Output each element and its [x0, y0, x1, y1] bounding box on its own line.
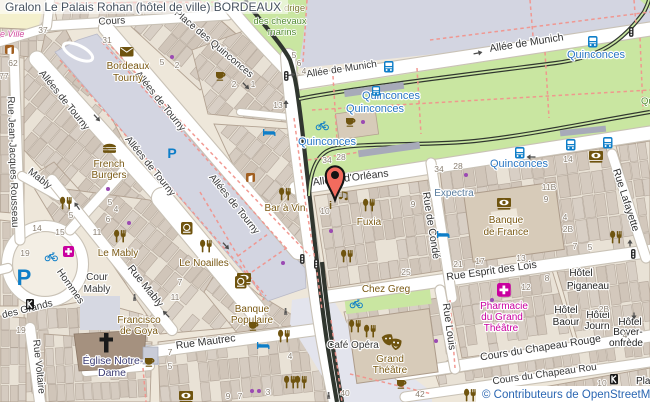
- svg-text:40: 40: [340, 388, 350, 398]
- svg-text:Chez Greg: Chez Greg: [362, 284, 410, 295]
- svg-text:des chevaux: des chevaux: [253, 16, 307, 27]
- svg-text:9: 9: [226, 391, 231, 401]
- svg-text:Banque: Banque: [489, 215, 524, 226]
- svg-text:French: French: [93, 159, 124, 170]
- svg-text:3: 3: [266, 387, 271, 397]
- svg-text:2: 2: [175, 60, 180, 70]
- svg-text:Mably: Mably: [84, 284, 111, 295]
- svg-text:Piganeau: Piganeau: [567, 281, 609, 292]
- svg-text:7: 7: [238, 391, 243, 401]
- svg-text:4: 4: [623, 330, 628, 340]
- svg-text:1: 1: [251, 79, 256, 89]
- svg-text:8: 8: [545, 273, 550, 283]
- svg-text:Quinconces: Quinconces: [490, 158, 549, 170]
- svg-text:14: 14: [563, 154, 573, 164]
- svg-text:2B: 2B: [563, 224, 574, 234]
- svg-text:Le Noailles: Le Noailles: [179, 258, 228, 269]
- svg-text:Pharmacie: Pharmacie: [480, 301, 528, 312]
- svg-text:Quinconces: Quinconces: [362, 90, 421, 102]
- svg-text:Quinconces: Quinconces: [567, 49, 626, 61]
- svg-text:Église Notre-: Église Notre-: [83, 354, 144, 367]
- svg-text:13: 13: [273, 100, 283, 110]
- svg-text:i: i: [329, 200, 332, 212]
- svg-text:9: 9: [411, 199, 416, 209]
- svg-text:Grand: Grand: [376, 354, 404, 365]
- svg-text:du Grand: du Grand: [481, 312, 523, 323]
- svg-text:marins: marins: [268, 27, 297, 38]
- svg-text:21: 21: [453, 259, 463, 269]
- svg-text:31: 31: [102, 35, 112, 45]
- svg-text:5: 5: [69, 210, 74, 220]
- svg-text:P: P: [167, 145, 176, 161]
- svg-text:34: 34: [322, 155, 332, 165]
- svg-text:28: 28: [453, 161, 463, 171]
- svg-text:7: 7: [573, 241, 578, 251]
- svg-text:e Ville: e Ville: [0, 29, 24, 39]
- svg-text:14: 14: [32, 223, 42, 233]
- svg-text:Bordeaux: Bordeaux: [107, 61, 150, 72]
- svg-text:5: 5: [108, 197, 113, 207]
- svg-text:Quinconces: Quinconces: [346, 103, 405, 115]
- svg-text:7: 7: [178, 277, 183, 287]
- svg-text:37: 37: [38, 25, 48, 35]
- svg-text:4: 4: [563, 212, 568, 222]
- svg-text:Fuxia: Fuxia: [357, 217, 382, 228]
- svg-text:Gralon Le Palais Rohan (hôtel: Gralon Le Palais Rohan (hôtel de ville) …: [5, 0, 281, 14]
- svg-text:28: 28: [336, 152, 346, 162]
- svg-text:34: 34: [434, 164, 444, 174]
- svg-text:Hôtel: Hôtel: [554, 305, 577, 316]
- svg-text:2: 2: [232, 79, 237, 89]
- svg-text:19: 19: [16, 325, 26, 335]
- svg-text:6: 6: [106, 214, 111, 224]
- svg-text:de France: de France: [483, 227, 528, 238]
- svg-text:Expectra: Expectra: [434, 188, 474, 199]
- svg-text:© Contributeurs de OpenStreetM: © Contributeurs de OpenStreetMap: [482, 389, 650, 401]
- svg-text:9: 9: [544, 194, 549, 204]
- svg-text:11: 11: [171, 292, 180, 302]
- svg-text:5: 5: [168, 361, 173, 371]
- svg-text:Bar à Vin: Bar à Vin: [265, 203, 306, 214]
- svg-text:4: 4: [288, 351, 293, 361]
- svg-text:Francisco: Francisco: [117, 315, 161, 326]
- svg-text:Tourny: Tourny: [113, 73, 143, 84]
- svg-text:Théâtre: Théâtre: [484, 323, 519, 334]
- svg-text:12: 12: [521, 282, 531, 292]
- svg-text:Baour: Baour: [553, 317, 580, 328]
- svg-text:de Goya: de Goya: [120, 326, 158, 337]
- svg-text:Café Opéra: Café Opéra: [327, 340, 379, 351]
- svg-text:2B: 2B: [599, 304, 610, 314]
- svg-text:Théâtre: Théâtre: [373, 365, 408, 376]
- svg-text:Quinconces: Quinconces: [298, 136, 357, 148]
- svg-text:Boyer-: Boyer-: [613, 327, 642, 338]
- svg-text:Hôtel: Hôtel: [569, 268, 592, 279]
- svg-text:Dame: Dame: [98, 367, 126, 379]
- svg-text:Cours: Cours: [98, 15, 125, 27]
- svg-text:Journ: Journ: [584, 321, 609, 332]
- svg-text:62: 62: [8, 58, 18, 68]
- svg-text:5: 5: [160, 57, 165, 67]
- svg-text:Burgers: Burgers: [91, 170, 126, 181]
- svg-text:Qu: Qu: [641, 96, 650, 107]
- svg-text:77: 77: [0, 71, 9, 81]
- svg-text:19: 19: [20, 248, 30, 258]
- svg-text:42: 42: [415, 389, 425, 399]
- svg-text:4: 4: [302, 66, 307, 76]
- svg-text:17: 17: [475, 256, 485, 266]
- svg-text:Cour: Cour: [86, 272, 108, 283]
- svg-text:11: 11: [93, 227, 102, 237]
- svg-text:Banque: Banque: [235, 304, 270, 315]
- svg-text:5: 5: [588, 242, 593, 252]
- svg-text:Place: Place: [636, 376, 650, 387]
- svg-text:P: P: [17, 265, 32, 290]
- svg-text:11B: 11B: [542, 182, 557, 192]
- svg-text:15: 15: [55, 227, 65, 237]
- svg-text:25: 25: [401, 267, 411, 277]
- svg-text:7: 7: [168, 347, 173, 357]
- svg-text:Le Mably: Le Mably: [98, 248, 139, 259]
- svg-text:13: 13: [516, 253, 526, 263]
- svg-text:4: 4: [114, 204, 119, 214]
